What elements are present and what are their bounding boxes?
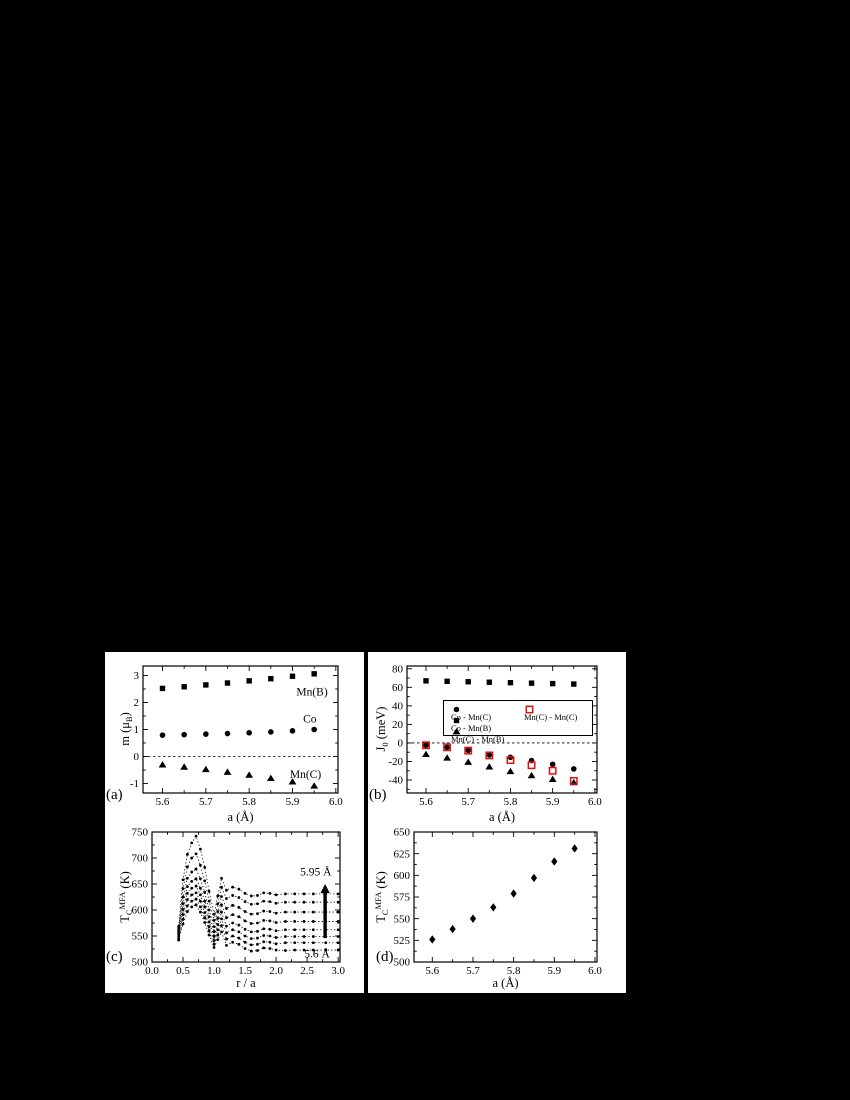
x-tick-label: 5.9 — [546, 796, 560, 808]
marker-dot — [203, 900, 206, 903]
marker-dot — [186, 898, 189, 901]
marker-circle — [571, 766, 577, 772]
marker-dot — [324, 941, 327, 944]
marker-circle — [203, 731, 209, 737]
marker-dot — [275, 921, 278, 924]
marker-dot — [256, 912, 259, 915]
marker-dot — [337, 949, 340, 952]
marker-dot — [293, 928, 296, 931]
y-tick-label: 0 — [134, 751, 140, 763]
marker-dot — [231, 894, 234, 897]
series-tc-mfa — [429, 844, 578, 943]
marker-diamond — [470, 914, 476, 922]
marker-dot — [337, 928, 340, 931]
marker-dot — [237, 915, 240, 918]
marker-circle — [246, 730, 252, 736]
marker-dot — [203, 905, 206, 908]
y-tick-label: 500 — [132, 957, 149, 969]
legend-marker-square-icon — [451, 716, 462, 725]
y-tick-label: 550 — [132, 931, 149, 943]
marker-circle — [268, 729, 274, 735]
marker-dot — [213, 946, 216, 949]
panel-label-d: (d) — [376, 949, 394, 965]
marker-dot — [293, 941, 296, 944]
marker-dot — [237, 924, 240, 927]
marker-dot — [225, 944, 228, 947]
marker-dot — [203, 916, 206, 919]
marker-dot — [231, 935, 234, 938]
marker-square — [290, 674, 295, 679]
marker-circle — [181, 732, 187, 738]
marker-dot — [186, 885, 189, 888]
chart-c-x-axis-label: r / a — [152, 976, 340, 990]
y-tick-label: 2 — [134, 697, 140, 709]
marker-dot — [293, 892, 296, 895]
marker-circle — [160, 732, 166, 738]
y-tick-label: 3 — [134, 670, 140, 682]
chart-a-y-axis-label: m (μB) — [118, 664, 132, 794]
marker-dot — [293, 911, 296, 914]
y-tick-label: 650 — [394, 827, 411, 839]
marker-dot — [312, 935, 315, 938]
legend-marker-circle-icon — [451, 705, 462, 714]
marker-dot — [195, 868, 198, 871]
series-5-90- — [177, 852, 339, 929]
marker-dot — [199, 877, 202, 880]
marker-dot — [199, 848, 202, 851]
marker-dot — [237, 943, 240, 946]
marker-dot — [250, 930, 253, 933]
marker-dot — [293, 920, 296, 923]
marker-dot — [220, 895, 223, 898]
marker-dot — [186, 853, 189, 856]
marker-diamond — [490, 903, 496, 911]
marker-dot — [262, 919, 265, 922]
y-tick-label: 600 — [132, 905, 149, 917]
marker-dot — [225, 925, 228, 928]
marker-dot — [244, 935, 247, 938]
marker-dot — [225, 931, 228, 934]
marker-triangle — [202, 766, 210, 772]
series-mn-b- — [160, 671, 317, 691]
marker-dot — [203, 891, 206, 894]
marker-dot — [216, 895, 219, 898]
marker-square — [181, 684, 186, 689]
marker-dot — [250, 903, 253, 906]
marker-dot — [213, 919, 216, 922]
marker-dot — [216, 938, 219, 941]
y-tick-label: 750 — [132, 827, 149, 839]
marker-dot — [303, 920, 306, 923]
marker-square — [160, 686, 165, 691]
y-tick-label: 625 — [394, 848, 411, 860]
marker-dot — [213, 913, 216, 916]
marker-dot — [284, 892, 287, 895]
marker-square — [225, 680, 230, 685]
marker-dot — [244, 892, 247, 895]
marker-square — [444, 679, 449, 684]
marker-triangle — [180, 763, 188, 769]
x-tick-label: 5.6 — [156, 796, 170, 808]
marker-dot — [268, 920, 271, 923]
marker-dot — [250, 950, 253, 953]
marker-dot — [195, 835, 198, 838]
chart-b-x-axis-label: a (Å) — [407, 810, 597, 824]
panel-label-b: (b) — [369, 787, 387, 803]
marker-dot — [195, 852, 198, 855]
marker-dot — [237, 888, 240, 891]
marker-square — [268, 676, 273, 681]
marker-dot — [303, 892, 306, 895]
marker-dot — [199, 894, 202, 897]
chart-c-tc-vs-cutoff: 0.00.51.01.52.02.53.05005506006507007505… — [105, 827, 364, 993]
marker-dot — [284, 941, 287, 944]
marker-dot — [199, 900, 202, 903]
marker-dot — [244, 941, 247, 944]
marker-triangle — [245, 771, 253, 777]
marker-dot — [199, 911, 202, 914]
marker-dot — [186, 865, 189, 868]
marker-dot — [231, 904, 234, 907]
legend-item-mn-c-mn-c-: Mn(C) - Mn(C) — [524, 704, 577, 722]
marker-circle — [444, 744, 450, 750]
panel-label-c: (c) — [106, 949, 123, 965]
chart-b-y-axis-label: J0 (meV) — [374, 664, 388, 794]
marker-dot — [231, 913, 234, 916]
marker-dot — [284, 935, 287, 938]
marker-dot — [256, 943, 259, 946]
marker-dot — [275, 949, 278, 952]
marker-square — [487, 680, 492, 685]
chart-a-plot-area: 5.65.75.85.96.0-10123Mn(B)CoMn(C) — [105, 652, 364, 827]
marker-diamond — [531, 874, 537, 882]
marker-diamond — [551, 857, 557, 865]
y-tick-label: 500 — [394, 957, 411, 969]
marker-dot — [177, 925, 180, 928]
marker-dot — [213, 943, 216, 946]
marker-dot — [275, 936, 278, 939]
marker-triangle — [485, 763, 493, 769]
marker-dot — [250, 913, 253, 916]
marker-dot — [262, 934, 265, 937]
annotation-label: Mn(B) — [296, 687, 327, 699]
marker-dot — [268, 892, 271, 895]
marker-dot — [284, 920, 287, 923]
marker-dot — [186, 910, 189, 913]
marker-dot — [199, 864, 202, 867]
x-tick-label: 5.7 — [461, 796, 475, 808]
marker-dot — [231, 928, 234, 931]
marker-diamond — [572, 844, 578, 852]
marker-dot — [275, 929, 278, 932]
marker-triangle — [224, 768, 232, 774]
marker-dot — [256, 922, 259, 925]
marker-dot — [182, 878, 185, 881]
marker-dot — [293, 949, 296, 952]
annotation-label: 5.95 Å — [300, 865, 332, 879]
x-tick-label: 6.0 — [588, 796, 602, 808]
marker-dot — [231, 941, 234, 944]
marker-triangle — [453, 728, 461, 734]
chart-b-legend: Co - Mn(C)Co - Mn(B)Mn(C) - Mn(B)Mn(C) -… — [443, 700, 593, 736]
marker-dot — [208, 929, 211, 932]
figure-panel-left: 5.65.75.85.96.0-10123Mn(B)CoMn(C) m (μB)… — [105, 652, 364, 993]
marker-dot — [208, 915, 211, 918]
marker-dot — [225, 916, 228, 919]
marker-circle — [311, 727, 317, 733]
y-tick-label: 60 — [392, 682, 404, 694]
y-tick-label: 650 — [132, 879, 149, 891]
marker-dot — [268, 928, 271, 931]
marker-dot — [337, 901, 340, 904]
marker-triangle — [443, 754, 451, 760]
marker-dot — [303, 935, 306, 938]
marker-square-open — [526, 706, 532, 712]
marker-dot — [250, 943, 253, 946]
marker-dot — [284, 928, 287, 931]
marker-diamond — [450, 925, 456, 933]
marker-dot — [303, 901, 306, 904]
marker-dot — [208, 890, 211, 893]
marker-square — [203, 682, 208, 687]
marker-dot — [231, 886, 234, 889]
marker-triangle — [310, 782, 318, 788]
chart-c-y-axis-label: TCMFA (K) — [118, 832, 132, 962]
marker-dot — [237, 906, 240, 909]
series-5-80- — [177, 877, 339, 933]
marker-circle — [423, 742, 429, 748]
marker-dot — [216, 910, 219, 913]
marker-diamond — [429, 935, 435, 943]
marker-dot — [186, 892, 189, 895]
marker-dot — [244, 947, 247, 950]
chart-c-plot-area: 0.00.51.01.52.02.53.05005506006507007505… — [105, 827, 364, 993]
marker-triangle — [528, 772, 536, 778]
marker-dot — [268, 900, 271, 903]
marker-dot — [312, 941, 315, 944]
marker-dot — [195, 891, 198, 894]
marker-circle — [225, 731, 231, 737]
marker-dot — [190, 900, 193, 903]
marker-square — [311, 671, 316, 676]
marker-dot — [256, 937, 259, 940]
marker-dot — [284, 911, 287, 914]
marker-dot — [195, 885, 198, 888]
marker-triangle — [507, 768, 515, 774]
marker-dot — [303, 911, 306, 914]
marker-dot — [256, 930, 259, 933]
series-5-75- — [177, 885, 339, 938]
y-tick-label: 700 — [132, 853, 149, 865]
marker-circle — [290, 728, 296, 734]
x-tick-label: 5.6 — [419, 796, 433, 808]
marker-dot — [284, 949, 287, 952]
marker-dot — [213, 925, 216, 928]
chart-d-y-axis-label: TCMFA (K) — [374, 832, 388, 962]
marker-square — [529, 680, 534, 685]
marker-dot — [220, 930, 223, 933]
figure-background: 5.65.75.85.96.0-10123Mn(B)CoMn(C) m (μB)… — [0, 0, 850, 1100]
marker-dot — [190, 894, 193, 897]
marker-dot — [190, 871, 193, 874]
marker-dot — [220, 886, 223, 889]
marker-circle — [465, 748, 471, 754]
marker-dot — [186, 877, 189, 880]
marker-square — [571, 681, 576, 686]
marker-dot — [312, 892, 315, 895]
marker-dot — [220, 917, 223, 920]
marker-dot — [231, 922, 234, 925]
x-tick-label: 6.0 — [329, 796, 343, 808]
chart-a-x-axis-label: a (Å) — [143, 810, 338, 824]
marker-dot — [244, 928, 247, 931]
marker-dot — [199, 905, 202, 908]
y-tick-label: 20 — [392, 719, 404, 731]
marker-dot — [284, 901, 287, 904]
legend-marker-square-open-icon — [524, 705, 535, 714]
marker-square — [466, 679, 471, 684]
marker-square — [454, 718, 459, 723]
legend-item-mn-c-mn-b-: Mn(C) - Mn(B) — [451, 726, 504, 744]
annotation-label: 5.6 Å — [304, 947, 330, 961]
marker-dot — [220, 924, 223, 927]
marker-diamond — [511, 889, 517, 897]
marker-triangle — [464, 758, 472, 764]
marker-dot — [312, 901, 315, 904]
marker-dot — [244, 910, 247, 913]
marker-square — [246, 678, 251, 683]
marker-dot — [190, 905, 193, 908]
marker-dot — [275, 902, 278, 905]
y-tick-label: 600 — [394, 870, 411, 882]
marker-dot — [250, 937, 253, 940]
chart-d-plot-area: 5.65.75.85.96.0500525550575600625650 — [368, 827, 626, 993]
x-tick-label: 5.9 — [286, 796, 300, 808]
marker-dot — [268, 910, 271, 913]
marker-dot — [225, 889, 228, 892]
annotation-label: Mn(C) — [290, 769, 321, 781]
marker-dot — [203, 921, 206, 924]
marker-dot — [237, 930, 240, 933]
marker-dot — [256, 902, 259, 905]
marker-dot — [275, 894, 278, 897]
marker-dot — [203, 879, 206, 882]
marker-dot — [190, 857, 193, 860]
marker-dot — [190, 887, 193, 890]
series-co — [160, 727, 317, 738]
marker-square — [550, 681, 555, 686]
marker-dot — [262, 900, 265, 903]
marker-dot — [244, 920, 247, 923]
y-tick-label: 550 — [394, 913, 411, 925]
chart-d-tc-vs-lattice: 5.65.75.85.96.0500525550575600625650 TCM… — [368, 827, 626, 993]
marker-dot — [208, 921, 211, 924]
marker-dot — [208, 934, 211, 937]
marker-dot — [337, 892, 340, 895]
marker-dot — [190, 842, 193, 845]
chart-d-x-axis-label: a (Å) — [414, 976, 597, 990]
marker-dot — [213, 930, 216, 933]
marker-dot — [244, 900, 247, 903]
legend-marker-triangle-icon — [451, 727, 462, 736]
marker-triangle — [549, 776, 557, 782]
marker-circle — [550, 761, 556, 767]
y-tick-label: 575 — [394, 892, 411, 904]
marker-dot — [262, 940, 265, 943]
marker-dot — [312, 920, 315, 923]
marker-dot — [337, 911, 340, 914]
marker-dot — [195, 903, 198, 906]
marker-dot — [216, 923, 219, 926]
marker-square — [508, 680, 513, 685]
marker-dot — [220, 903, 223, 906]
marker-dot — [195, 898, 198, 901]
marker-dot — [312, 911, 315, 914]
marker-dot — [216, 902, 219, 905]
marker-dot — [268, 935, 271, 938]
marker-dot — [250, 922, 253, 925]
marker-circle — [487, 752, 493, 758]
marker-dot — [262, 927, 265, 930]
marker-square — [423, 678, 428, 683]
marker-dot — [203, 866, 206, 869]
series-co-mn-b- — [423, 678, 576, 687]
marker-triangle — [422, 751, 430, 757]
marker-dot — [220, 911, 223, 914]
chart-a-magnetic-moments: 5.65.75.85.96.0-10123Mn(B)CoMn(C) m (μB)… — [105, 652, 364, 827]
y-tick-label: 0 — [398, 738, 404, 750]
marker-dot — [268, 941, 271, 944]
y-tick-label: -40 — [388, 775, 403, 787]
arrow-head-up — [321, 884, 330, 893]
marker-dot — [256, 949, 259, 952]
marker-triangle — [267, 775, 275, 781]
marker-dot — [337, 941, 340, 944]
marker-dot — [262, 891, 265, 894]
marker-dot — [199, 887, 202, 890]
marker-circle — [454, 707, 460, 713]
marker-dot — [293, 935, 296, 938]
marker-dot — [303, 941, 306, 944]
marker-square-open — [549, 768, 555, 774]
marker-dot — [275, 942, 278, 945]
marker-dot — [256, 894, 259, 897]
marker-dot — [213, 939, 216, 942]
marker-dot — [216, 917, 219, 920]
y-tick-label: 1 — [134, 724, 140, 736]
marker-dot — [237, 937, 240, 940]
marker-dot — [208, 909, 211, 912]
marker-dot — [225, 938, 228, 941]
y-tick-label: 40 — [392, 701, 404, 713]
marker-dot — [250, 895, 253, 898]
x-tick-label: 5.8 — [504, 796, 518, 808]
figure-panel-right: 5.65.75.85.96.0-40-20020406080 J0 (meV) … — [368, 652, 626, 993]
y-tick-label: -20 — [388, 756, 403, 768]
marker-dot — [293, 901, 296, 904]
chart-b-exchange-couplings: 5.65.75.85.96.0-40-20020406080 J0 (meV) … — [368, 652, 626, 827]
annotation-label: Co — [303, 714, 317, 726]
marker-dot — [216, 934, 219, 937]
marker-dot — [225, 907, 228, 910]
marker-dot — [213, 935, 216, 938]
marker-dot — [262, 910, 265, 913]
marker-dot — [195, 877, 198, 880]
marker-dot — [337, 920, 340, 923]
marker-dot — [237, 896, 240, 899]
x-tick-label: 5.8 — [242, 796, 256, 808]
marker-dot — [262, 947, 265, 950]
